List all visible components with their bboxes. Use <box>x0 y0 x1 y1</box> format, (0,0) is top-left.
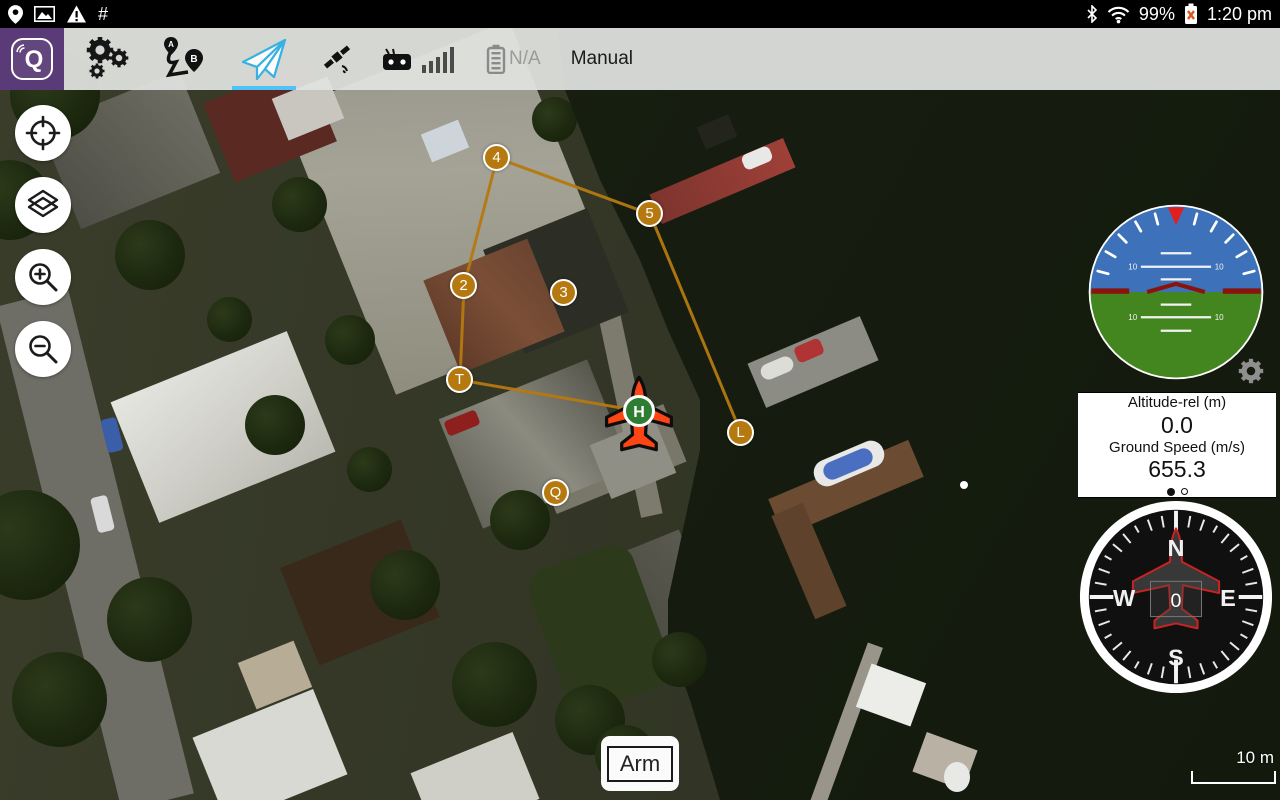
svg-text:10: 10 <box>1215 263 1224 272</box>
map-buoy <box>960 481 968 489</box>
svg-text:H: H <box>633 404 645 421</box>
wifi-icon <box>1107 5 1130 24</box>
svg-text:B: B <box>190 54 197 65</box>
values-pager-dots[interactable] <box>1167 488 1188 496</box>
waypoint-2[interactable]: 2 <box>450 272 477 299</box>
telemetry-values-panel[interactable]: Altitude-rel (m) 0.0 Ground Speed (m/s) … <box>1078 392 1276 498</box>
map-scale-bar <box>1191 771 1276 784</box>
attitude-indicator[interactable]: 10 10 10 10 <box>1086 202 1266 382</box>
clock: 1:20 pm <box>1207 4 1272 25</box>
warning-icon <box>66 5 87 23</box>
vehicle-setup-gears-icon[interactable] <box>84 28 132 90</box>
compass-south: S <box>1168 645 1184 671</box>
waypoint-q[interactable]: Q <box>542 479 569 506</box>
waypoint-takeoff[interactable]: T <box>446 366 473 393</box>
altitude-value: 0.0 <box>1161 413 1193 438</box>
app-toolbar: Q A B <box>0 28 1280 90</box>
flight-mode-label[interactable]: Manual <box>571 48 633 70</box>
altitude-label: Altitude-rel (m) <box>1128 394 1226 411</box>
fly-paper-plane-icon[interactable] <box>232 28 296 90</box>
plan-route-icon[interactable]: A B <box>158 28 208 90</box>
battery-percent: 99% <box>1139 4 1175 25</box>
fly-tab-underline <box>232 86 296 90</box>
map-building <box>193 689 348 800</box>
waypoint-3[interactable]: 3 <box>550 279 577 306</box>
map-scale: 10 m <box>1180 748 1276 784</box>
compass-west: W <box>1113 585 1136 611</box>
rc-signal-bars[interactable] <box>422 45 454 73</box>
qgc-logo-button[interactable]: Q <box>0 28 64 90</box>
waypoint-4[interactable]: 4 <box>483 144 510 171</box>
ground-speed-label: Ground Speed (m/s) <box>1109 439 1245 456</box>
compass-east: E <box>1220 585 1236 611</box>
layers-icon <box>23 185 63 225</box>
arm-button-label: Arm <box>607 746 673 782</box>
waypoint-land[interactable]: L <box>727 419 754 446</box>
vehicle-icon[interactable]: H <box>599 371 679 455</box>
svg-text:10: 10 <box>1128 313 1137 322</box>
battery-unknown-icon <box>1184 3 1198 25</box>
center-map-button[interactable] <box>15 105 71 161</box>
compass-north: N <box>1168 535 1185 561</box>
qgroundcontrol-app: 2 3 4 5 T L Q H <box>0 0 1280 800</box>
svg-text:10: 10 <box>1215 313 1224 322</box>
map-layers-button[interactable] <box>15 177 71 233</box>
android-status-bar: # 99% 1:20 pm <box>0 0 1280 28</box>
image-icon <box>34 6 55 22</box>
rc-transmitter-icon[interactable] <box>382 28 412 90</box>
svg-text:10: 10 <box>1128 263 1137 272</box>
zoom-out-button[interactable] <box>15 321 71 377</box>
zoom-in-icon <box>23 257 63 297</box>
crosshair-icon <box>23 113 63 153</box>
battery-icon[interactable] <box>486 28 506 90</box>
location-icon <box>8 5 23 24</box>
arm-button[interactable]: Arm <box>601 736 679 791</box>
zoom-out-icon <box>23 329 63 369</box>
gps-satellite-icon[interactable] <box>322 28 354 90</box>
qgc-logo: Q <box>11 38 53 80</box>
svg-text:A: A <box>168 40 174 49</box>
bluetooth-icon <box>1086 5 1098 23</box>
compass-heading-value: 0 <box>1171 590 1182 612</box>
waypoint-5[interactable]: 5 <box>636 200 663 227</box>
map-scale-label: 10 m <box>1180 748 1276 768</box>
home-marker: H <box>625 397 654 426</box>
instrument-settings-gear-icon[interactable] <box>1238 358 1264 384</box>
zoom-in-button[interactable] <box>15 249 71 305</box>
ground-speed-value: 655.3 <box>1148 457 1206 482</box>
compass-indicator[interactable]: N E S W 0 <box>1078 499 1274 695</box>
hash-symbol: # <box>98 4 108 25</box>
battery-status-text: N/A <box>509 48 541 70</box>
